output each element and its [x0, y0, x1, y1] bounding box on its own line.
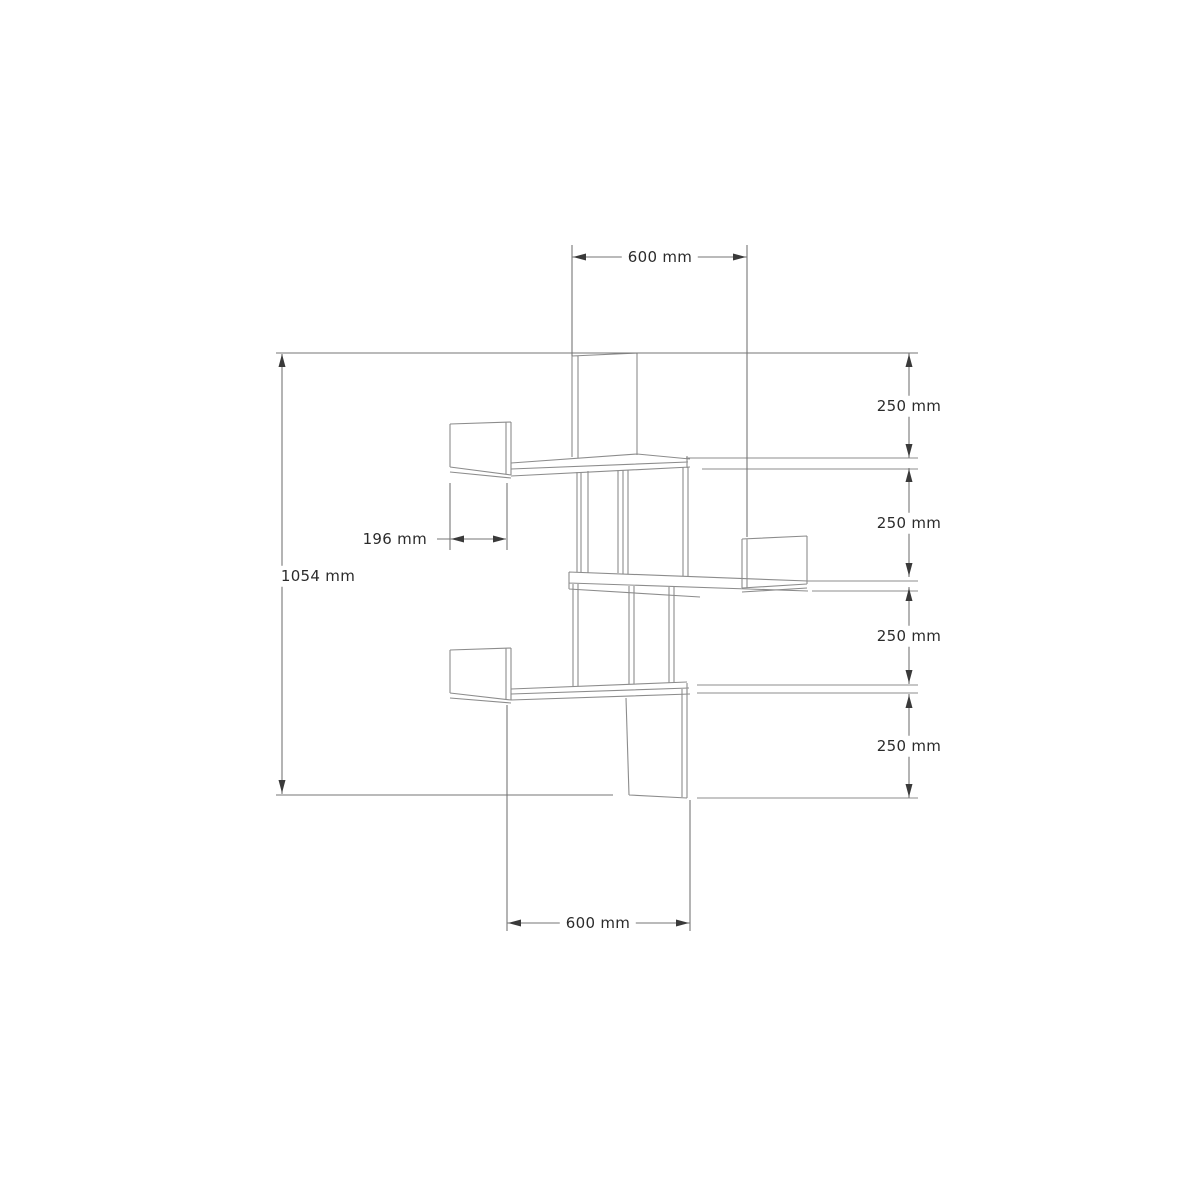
tier-1-support-panels [577, 467, 688, 576]
technical-drawing-canvas: 600 mm 250 mm 250 mm 250 mm 250 mm 1054 … [0, 0, 1200, 1200]
dimension-bottom-width [507, 705, 690, 931]
shelf-line-drawing [0, 0, 1200, 1200]
dim-label-tier-spacing-2: 250 mm [871, 513, 947, 534]
dimension-top-width [572, 245, 747, 537]
dim-label-tier-spacing-4: 250 mm [871, 736, 947, 757]
dim-label-tier-spacing-1: 250 mm [871, 396, 947, 417]
dimension-shelf-depth [437, 483, 507, 550]
shelf-1-left-bracket [450, 422, 511, 478]
dim-label-tier-spacing-3: 250 mm [871, 626, 947, 647]
tier-2-support-panels [573, 584, 674, 686]
dim-label-top-width: 600 mm [622, 247, 698, 268]
dim-label-total-height: 1054 mm [275, 566, 361, 587]
shelf-2-right-bracket [742, 536, 807, 592]
dim-label-shelf-depth: 196 mm [357, 529, 433, 550]
shelf-2-board [569, 572, 918, 597]
dimension-right-tier-chain [906, 353, 913, 798]
shelf-3-board [511, 682, 918, 700]
shelf-1-board [511, 454, 918, 476]
top-vertical-panel [572, 353, 637, 458]
dim-label-bottom-width: 600 mm [560, 913, 636, 934]
shelf-3-left-bracket [450, 648, 511, 703]
